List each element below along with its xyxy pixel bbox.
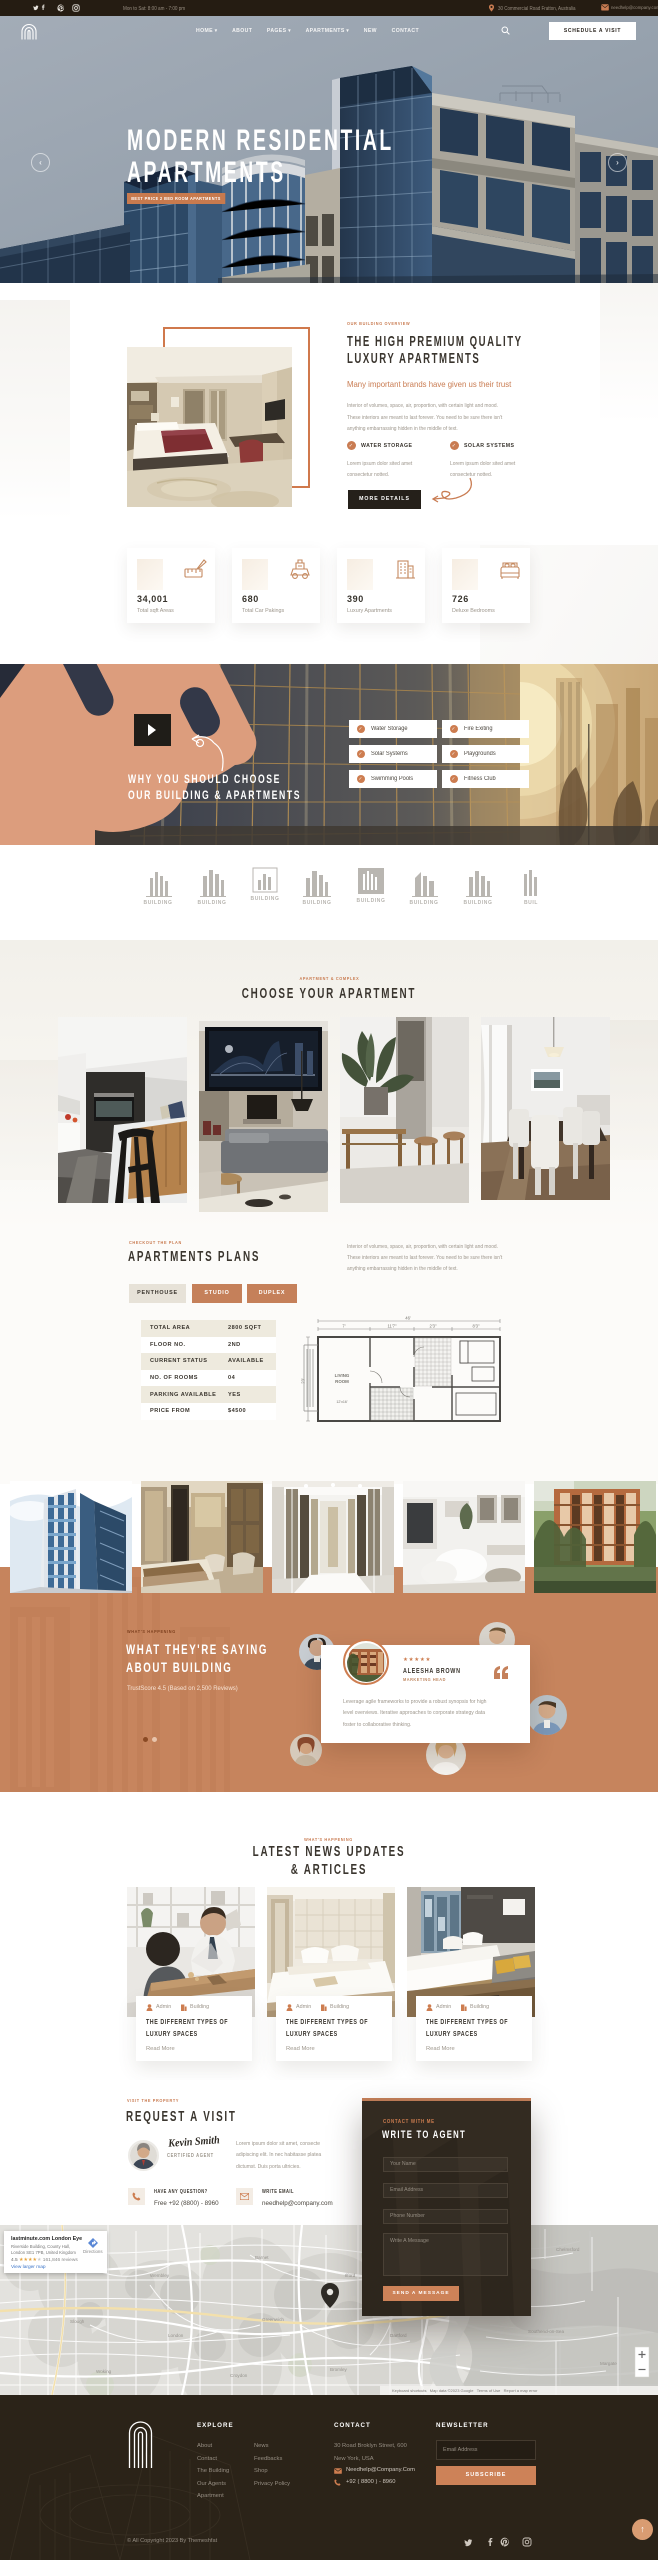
svg-text:Croydon: Croydon <box>230 2373 248 2378</box>
svg-text:12'x16': 12'x16' <box>336 1400 347 1404</box>
svg-text:Slough: Slough <box>70 2319 85 2324</box>
svg-text:Southend-on-Sea: Southend-on-Sea <box>528 2329 564 2334</box>
svg-text:Wembley: Wembley <box>150 2273 170 2278</box>
svg-text:BUILDING: BUILDING <box>198 900 227 906</box>
svg-text:Margate: Margate <box>600 2361 617 2366</box>
svg-text:Dartford: Dartford <box>390 2333 407 2338</box>
svg-text:BUILDING: BUILDING <box>144 900 173 906</box>
svg-text:BUILDING: BUILDING <box>410 900 439 906</box>
svg-text:Chelmsford: Chelmsford <box>556 2247 580 2252</box>
svg-text:7': 7' <box>342 1324 345 1329</box>
svg-text:BUILDING: BUILDING <box>251 896 280 902</box>
svg-text:Keyboard shortcuts Map data: Keyboard shortcuts Map data ©2023 Google… <box>392 2388 538 2393</box>
svg-text:ROOM: ROOM <box>335 1379 349 1384</box>
svg-text:46': 46' <box>405 1316 411 1321</box>
svg-text:Greenwich: Greenwich <box>262 2317 284 2322</box>
svg-text:BUILDING: BUILDING <box>464 900 493 906</box>
svg-text:BUILDING: BUILDING <box>357 898 386 904</box>
svg-text:Barnet: Barnet <box>255 2255 269 2260</box>
svg-text:BUIL: BUIL <box>524 900 538 906</box>
svg-text:LIVING: LIVING <box>335 1373 350 1378</box>
svg-text:23': 23' <box>301 1378 306 1384</box>
svg-text:BUILDING: BUILDING <box>303 900 332 906</box>
svg-text:London: London <box>168 2333 184 2338</box>
svg-text:Woking: Woking <box>96 2369 112 2374</box>
svg-text:11'7": 11'7" <box>388 1324 397 1329</box>
svg-text:Ilford: Ilford <box>345 2273 356 2278</box>
svg-text:8'3": 8'3" <box>473 1324 480 1329</box>
svg-text:Bromley: Bromley <box>330 2367 348 2372</box>
svg-text:2'3": 2'3" <box>430 1324 437 1329</box>
